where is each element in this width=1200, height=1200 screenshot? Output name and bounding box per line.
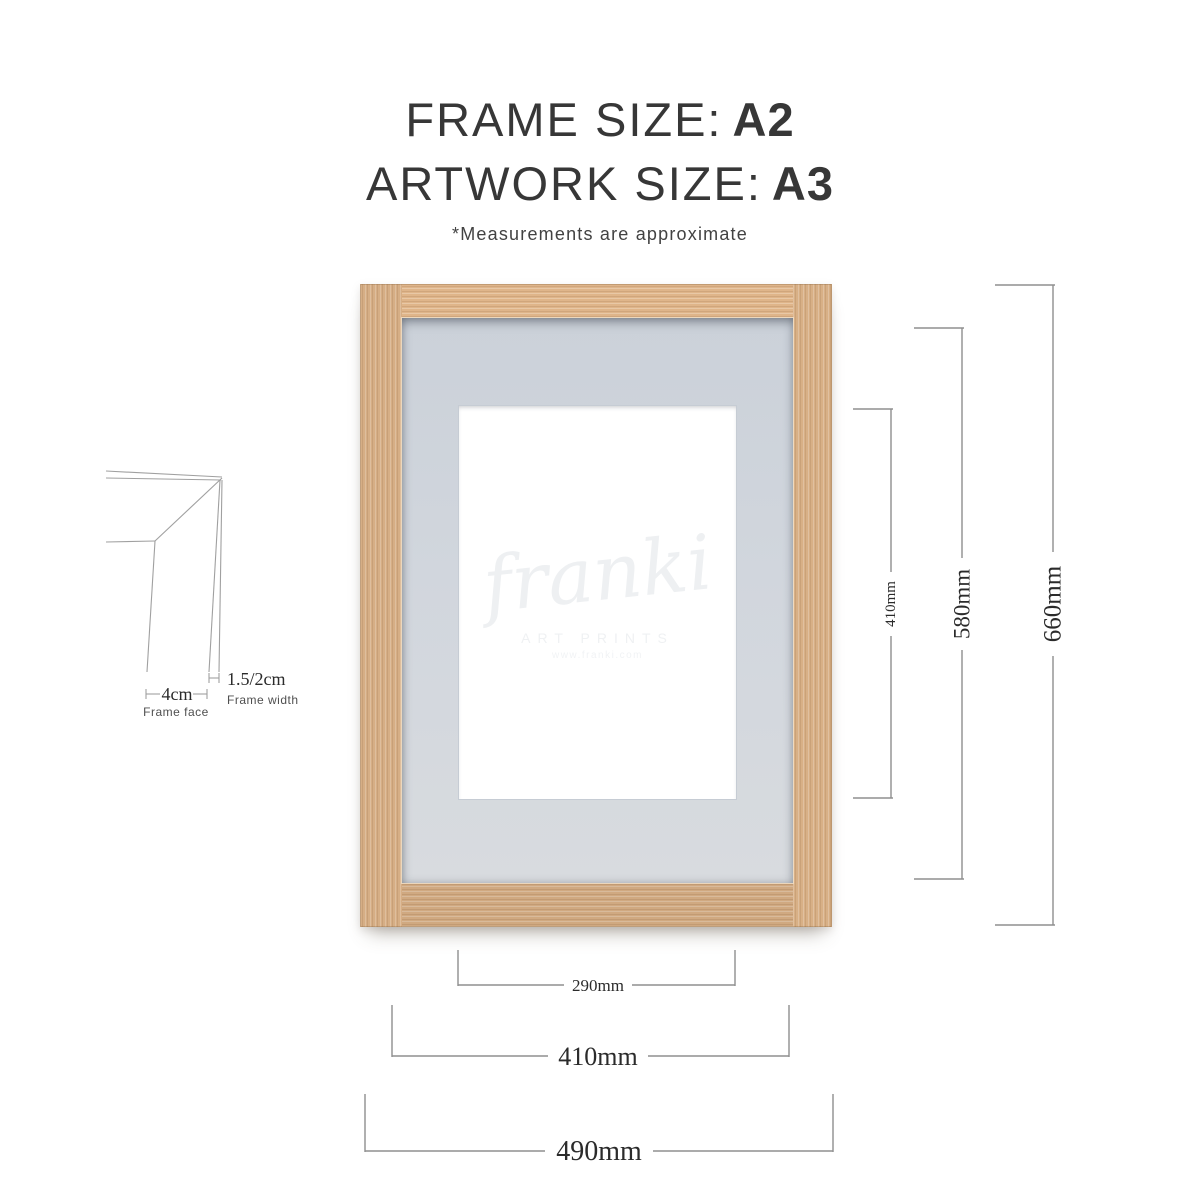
artwork-size-title: ARTWORK SIZE:A3 — [0, 152, 1200, 216]
artwork-size-label: ARTWORK SIZE: — [366, 157, 762, 210]
artwork-window: franki ART PRINTS www.franki.com — [458, 405, 737, 800]
dim-artwork-width: 290mm — [458, 950, 735, 995]
dim-artwork-height: 410mm — [853, 409, 899, 798]
watermark-subtitle: ART PRINTS — [459, 630, 736, 646]
frame-rail-bottom — [360, 883, 832, 927]
picture-frame: franki ART PRINTS www.franki.com — [360, 284, 832, 927]
frame-rail-left — [360, 284, 402, 927]
header: FRAME SIZE:A2 ARTWORK SIZE:A3 *Measureme… — [0, 88, 1200, 245]
profile-frame-width-value: 1.5/2cm — [227, 669, 286, 689]
mat-board: franki ART PRINTS www.franki.com — [402, 318, 793, 883]
dim-mount-height: 580mm — [914, 328, 975, 879]
frame-profile-diagram: 1.5/2cm Frame width 4cm Frame face — [106, 471, 299, 719]
measurements-note: *Measurements are approximate — [0, 224, 1200, 245]
artwork-size-value: A3 — [772, 157, 834, 210]
dim-frame-width-label: 490mm — [556, 1136, 642, 1167]
profile-frame-width-caption: Frame width — [227, 693, 299, 707]
dim-frame-height-label: 660mm — [1040, 565, 1067, 642]
frame-size-value: A2 — [733, 93, 795, 146]
profile-frame-face-value: 4cm — [162, 684, 193, 704]
dim-artwork-width-label: 290mm — [572, 976, 624, 995]
dim-frame-height: 660mm — [995, 285, 1067, 925]
watermark: franki ART PRINTS www.franki.com — [459, 524, 736, 661]
frame-rail-right — [793, 284, 832, 927]
watermark-url: www.franki.com — [459, 650, 736, 661]
dim-artwork-height-label: 410mm — [883, 581, 899, 627]
profile-frame-face-caption: Frame face — [143, 705, 209, 719]
dim-mount-width-label: 410mm — [558, 1042, 637, 1071]
frame-size-title: FRAME SIZE:A2 — [0, 88, 1200, 152]
product-dimension-diagram: FRAME SIZE:A2 ARTWORK SIZE:A3 *Measureme… — [0, 0, 1200, 1200]
dim-mount-height-label: 580mm — [950, 569, 975, 639]
dim-frame-width: 490mm — [365, 1094, 833, 1167]
watermark-script: franki — [455, 510, 741, 638]
frame-size-label: FRAME SIZE: — [405, 93, 722, 146]
dim-mount-width: 410mm — [392, 1005, 789, 1071]
